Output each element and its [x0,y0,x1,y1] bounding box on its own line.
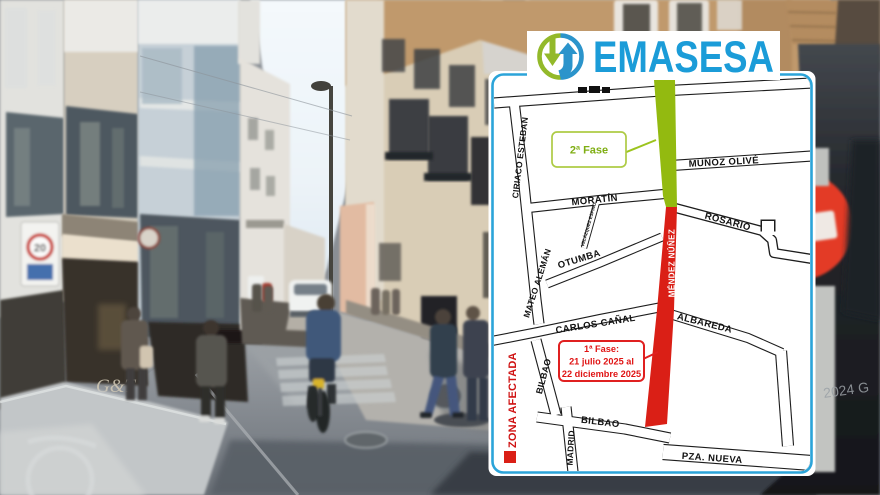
svg-text:MADRID: MADRID [565,430,577,466]
svg-text:20: 20 [34,243,46,255]
svg-text:22 diciembre 2025: 22 diciembre 2025 [562,369,641,379]
svg-text:MÉNDEZ NÚÑEZ: MÉNDEZ NÚÑEZ [668,229,677,297]
svg-text:21 julio 2025 al: 21 julio 2025 al [569,357,634,367]
svg-text:EMASESA: EMASESA [593,33,774,82]
svg-text:1ª Fase:: 1ª Fase: [584,344,619,354]
svg-text:ZONA AFECTADA: ZONA AFECTADA [507,352,519,448]
svg-text:2ª Fase: 2ª Fase [570,145,608,157]
